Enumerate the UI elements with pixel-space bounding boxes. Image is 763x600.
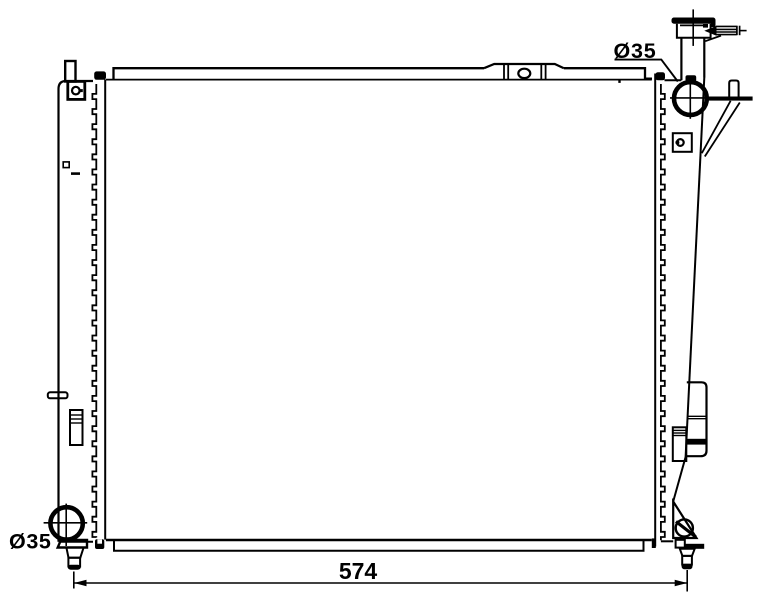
- svg-text:Ø35: Ø35: [9, 530, 51, 554]
- svg-text:574: 574: [339, 558, 378, 584]
